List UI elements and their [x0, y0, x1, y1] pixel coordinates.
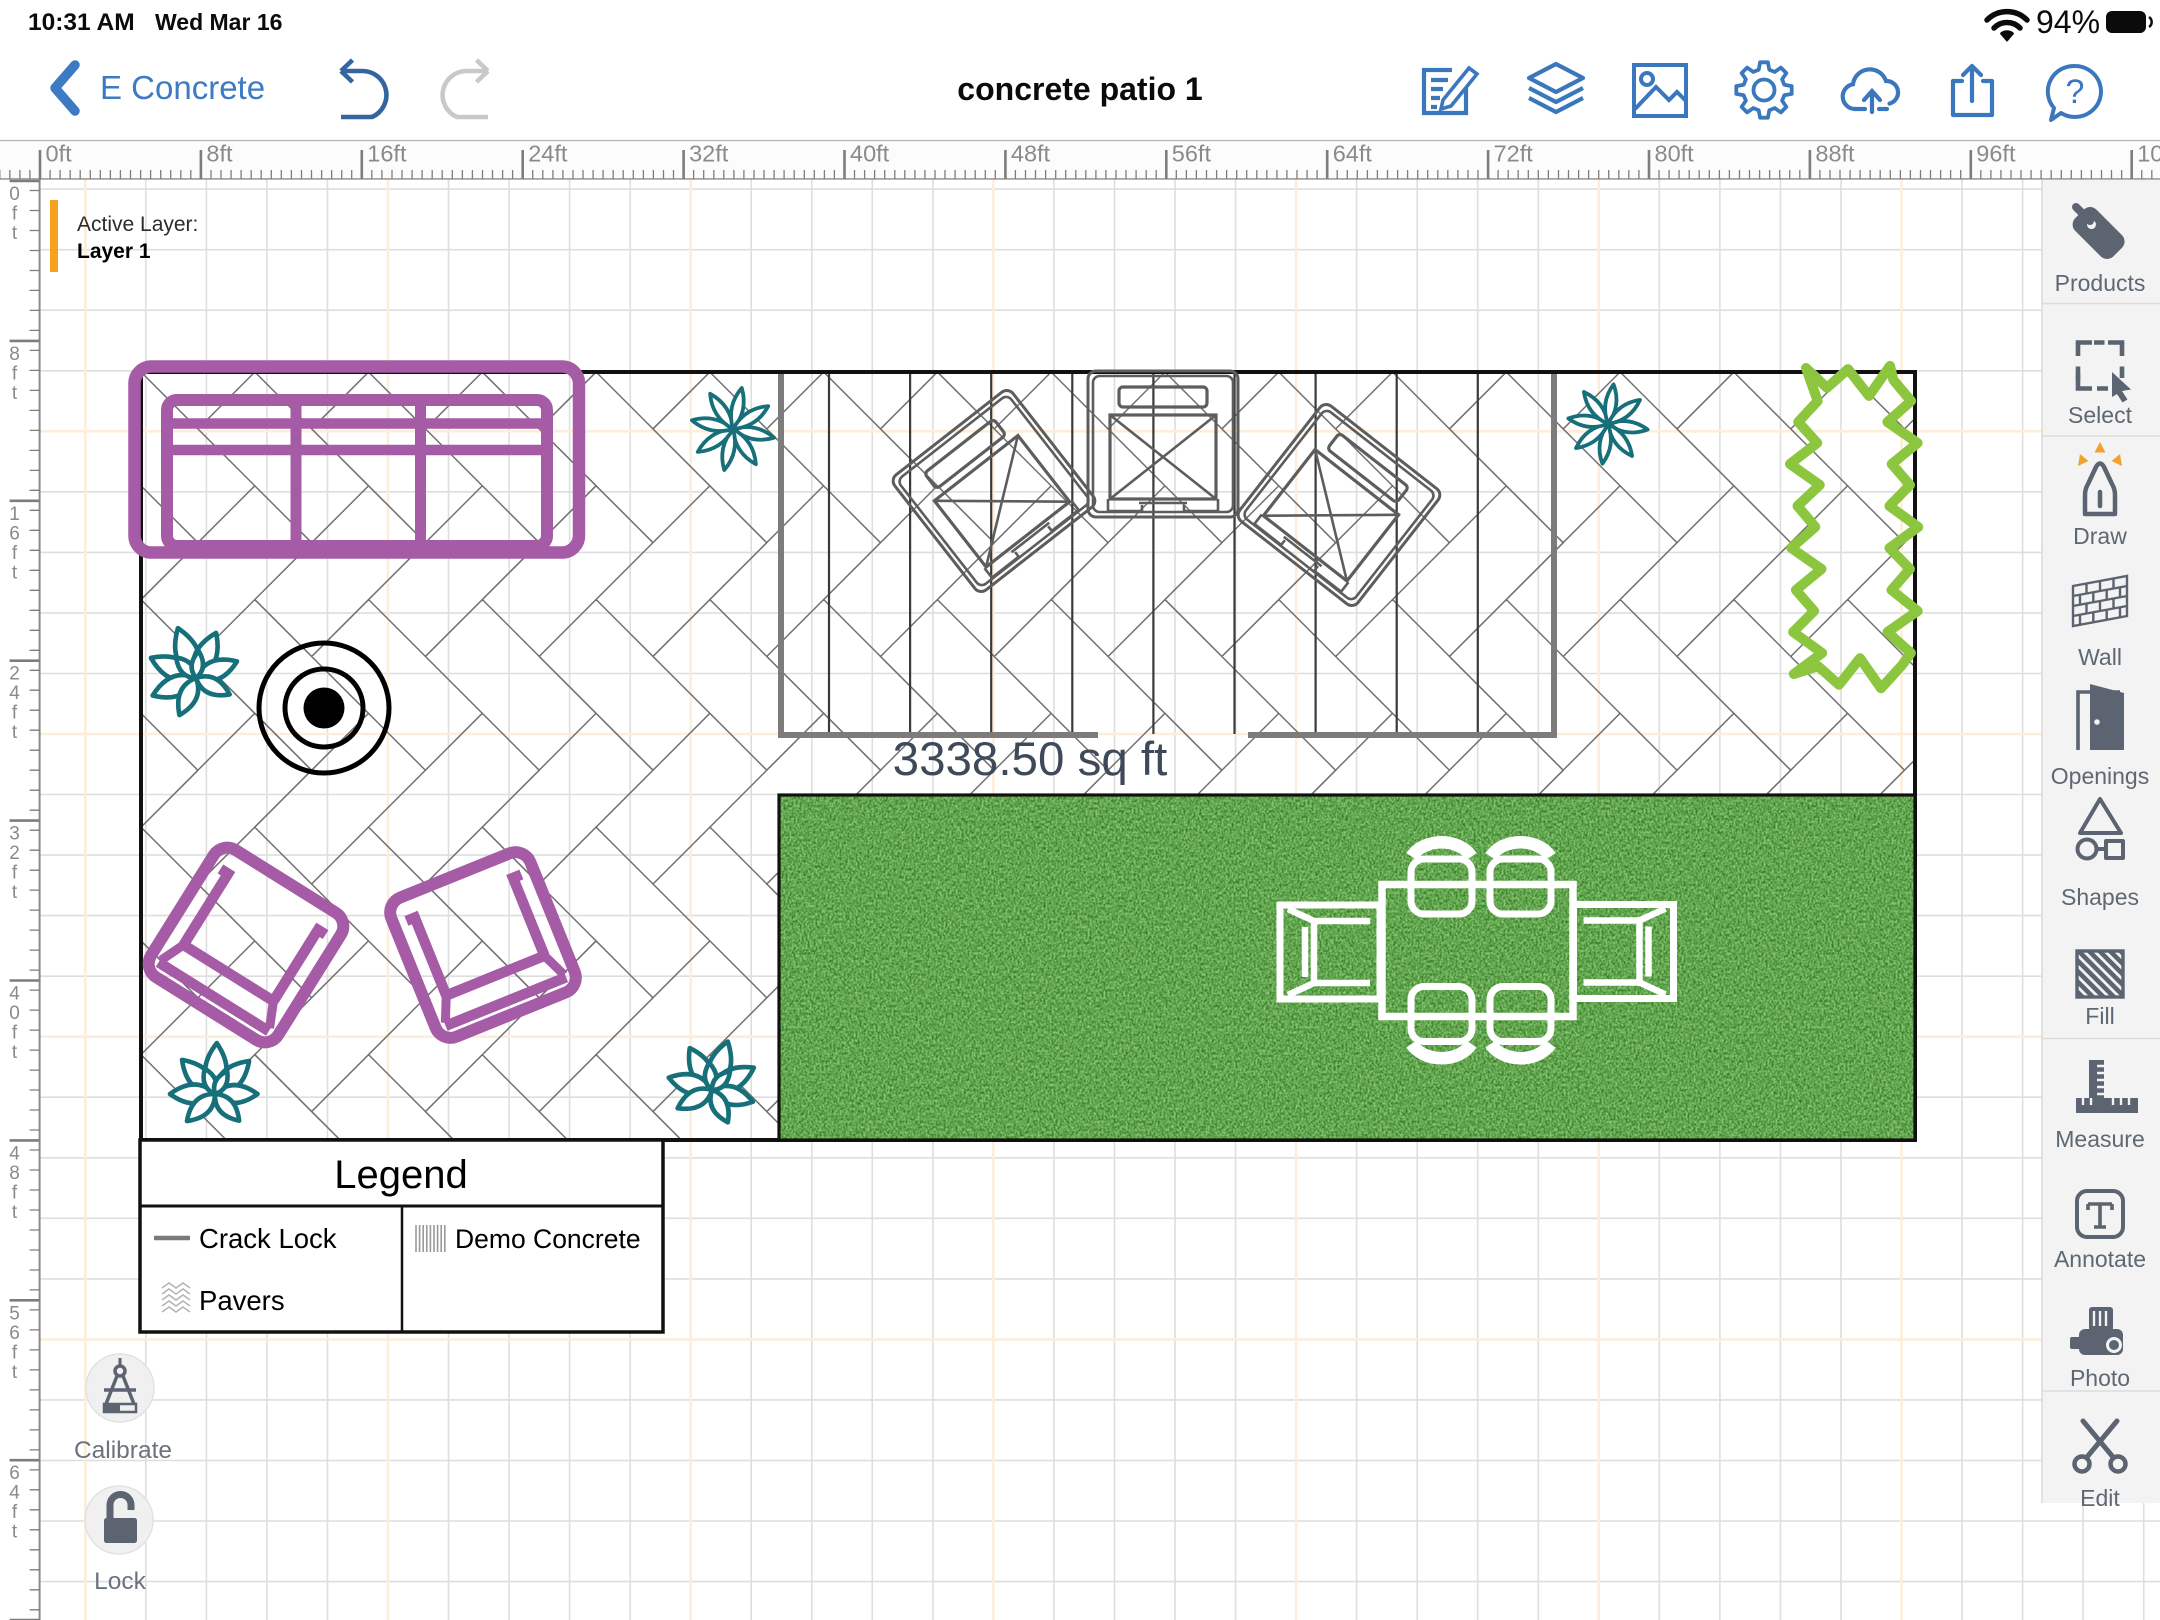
svg-text:0: 0 — [9, 1003, 20, 1024]
svg-text:Annotate: Annotate — [2054, 1246, 2146, 1272]
svg-text:48ft: 48ft — [1011, 141, 1051, 167]
svg-text:32ft: 32ft — [689, 141, 729, 167]
svg-text:4: 4 — [9, 1483, 20, 1504]
svg-text:f: f — [12, 204, 18, 225]
svg-text:t: t — [12, 1522, 18, 1543]
svg-text:Fill: Fill — [2085, 1003, 2114, 1029]
svg-text:Openings: Openings — [2051, 763, 2149, 789]
svg-text:t: t — [12, 882, 18, 903]
svg-text:Measure: Measure — [2055, 1126, 2144, 1152]
svg-text:40ft: 40ft — [850, 141, 890, 167]
svg-text:Draw: Draw — [2073, 523, 2127, 549]
svg-text:t: t — [12, 1362, 18, 1383]
svg-text:4: 4 — [9, 1143, 20, 1164]
svg-text:56ft: 56ft — [1172, 141, 1212, 167]
svg-text:8: 8 — [9, 344, 20, 365]
svg-text:6: 6 — [9, 1463, 20, 1484]
svg-text:96ft: 96ft — [1976, 141, 2016, 167]
svg-text:f: f — [12, 1023, 18, 1044]
svg-text:Products: Products — [2055, 270, 2146, 296]
svg-text:0ft: 0ft — [46, 141, 73, 167]
svg-text:104ft: 104ft — [2137, 141, 2160, 167]
svg-text:Edit: Edit — [2080, 1485, 2120, 1511]
svg-text:Pavers: Pavers — [199, 1285, 285, 1316]
svg-text:f: f — [12, 1182, 18, 1203]
svg-text:10:31 AM: 10:31 AM — [28, 9, 135, 36]
svg-text:concrete patio 1: concrete patio 1 — [957, 71, 1202, 107]
svg-text:t: t — [12, 1042, 18, 1063]
svg-text:Select: Select — [2068, 402, 2133, 428]
svg-text:t: t — [12, 562, 18, 583]
svg-text:3: 3 — [9, 824, 20, 845]
svg-text:64ft: 64ft — [1333, 141, 1373, 167]
svg-text:Demo Concrete: Demo Concrete — [455, 1224, 641, 1254]
svg-text:16ft: 16ft — [367, 141, 407, 167]
svg-text:Shapes: Shapes — [2061, 884, 2139, 910]
svg-text:1: 1 — [9, 504, 20, 525]
svg-text:88ft: 88ft — [1815, 141, 1855, 167]
svg-text:E Concrete: E Concrete — [100, 69, 265, 106]
svg-text:Calibrate: Calibrate — [74, 1437, 172, 1464]
svg-text:Crack Lock: Crack Lock — [199, 1223, 337, 1254]
svg-text:t: t — [12, 223, 18, 244]
svg-text:0: 0 — [9, 184, 20, 205]
svg-text:t: t — [12, 722, 18, 743]
svg-text:f: f — [12, 703, 18, 724]
svg-text:24ft: 24ft — [528, 141, 568, 167]
svg-text:f: f — [12, 1502, 18, 1523]
svg-text:5: 5 — [9, 1303, 20, 1324]
svg-text:Photo: Photo — [2070, 1365, 2130, 1391]
svg-text:2: 2 — [9, 664, 20, 685]
svg-text:f: f — [12, 1342, 18, 1363]
svg-text:Lock: Lock — [94, 1568, 147, 1595]
svg-text:Wed Mar 16: Wed Mar 16 — [155, 9, 282, 35]
svg-text:Legend: Legend — [334, 1153, 467, 1197]
svg-text:6: 6 — [9, 523, 20, 544]
svg-text:Layer 1: Layer 1 — [77, 240, 151, 263]
svg-text:f: f — [12, 363, 18, 384]
svg-text:Wall: Wall — [2078, 644, 2122, 670]
svg-text:?: ? — [2066, 73, 2085, 111]
svg-text:Active Layer:: Active Layer: — [77, 213, 198, 236]
svg-text:8ft: 8ft — [206, 141, 233, 167]
svg-text:2: 2 — [9, 843, 20, 864]
svg-text:94%: 94% — [2036, 4, 2100, 40]
svg-text:4: 4 — [9, 683, 20, 704]
svg-text:f: f — [12, 863, 18, 884]
svg-text:80ft: 80ft — [1655, 141, 1695, 167]
svg-text:t: t — [12, 383, 18, 404]
svg-text:t: t — [12, 1202, 18, 1223]
svg-text:8: 8 — [9, 1163, 20, 1184]
svg-text:72ft: 72ft — [1494, 141, 1534, 167]
svg-text:f: f — [12, 543, 18, 564]
svg-text:4: 4 — [9, 984, 20, 1005]
svg-text:6: 6 — [9, 1323, 20, 1344]
svg-text:3338.50 sq ft: 3338.50 sq ft — [893, 733, 1168, 786]
